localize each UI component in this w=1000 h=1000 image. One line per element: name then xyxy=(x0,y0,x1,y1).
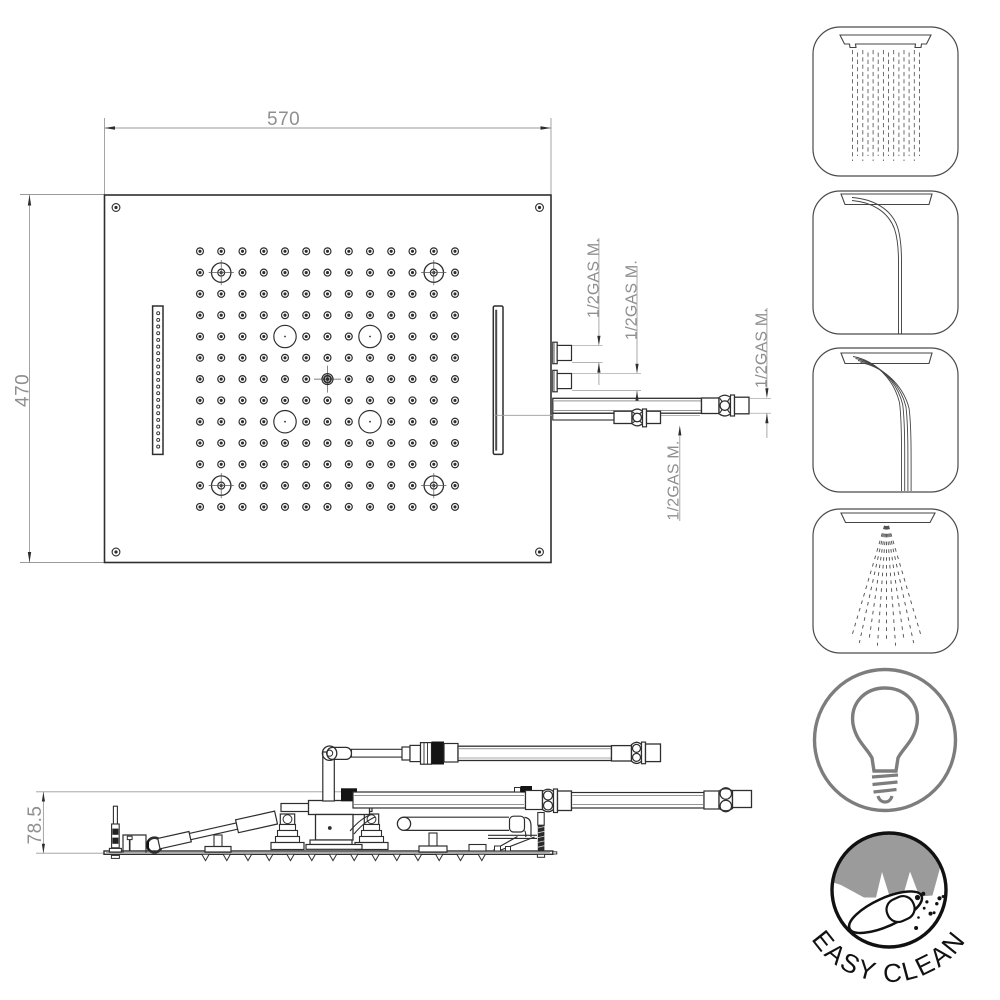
svg-text:1/2GAS M.: 1/2GAS M. xyxy=(754,308,771,388)
svg-text:470: 470 xyxy=(13,374,34,407)
svg-text:1/2GAS M.: 1/2GAS M. xyxy=(624,260,641,340)
svg-text:1/2GAS M.: 1/2GAS M. xyxy=(586,238,603,318)
svg-text:78.5: 78.5 xyxy=(25,806,46,845)
svg-text:570: 570 xyxy=(267,109,300,130)
